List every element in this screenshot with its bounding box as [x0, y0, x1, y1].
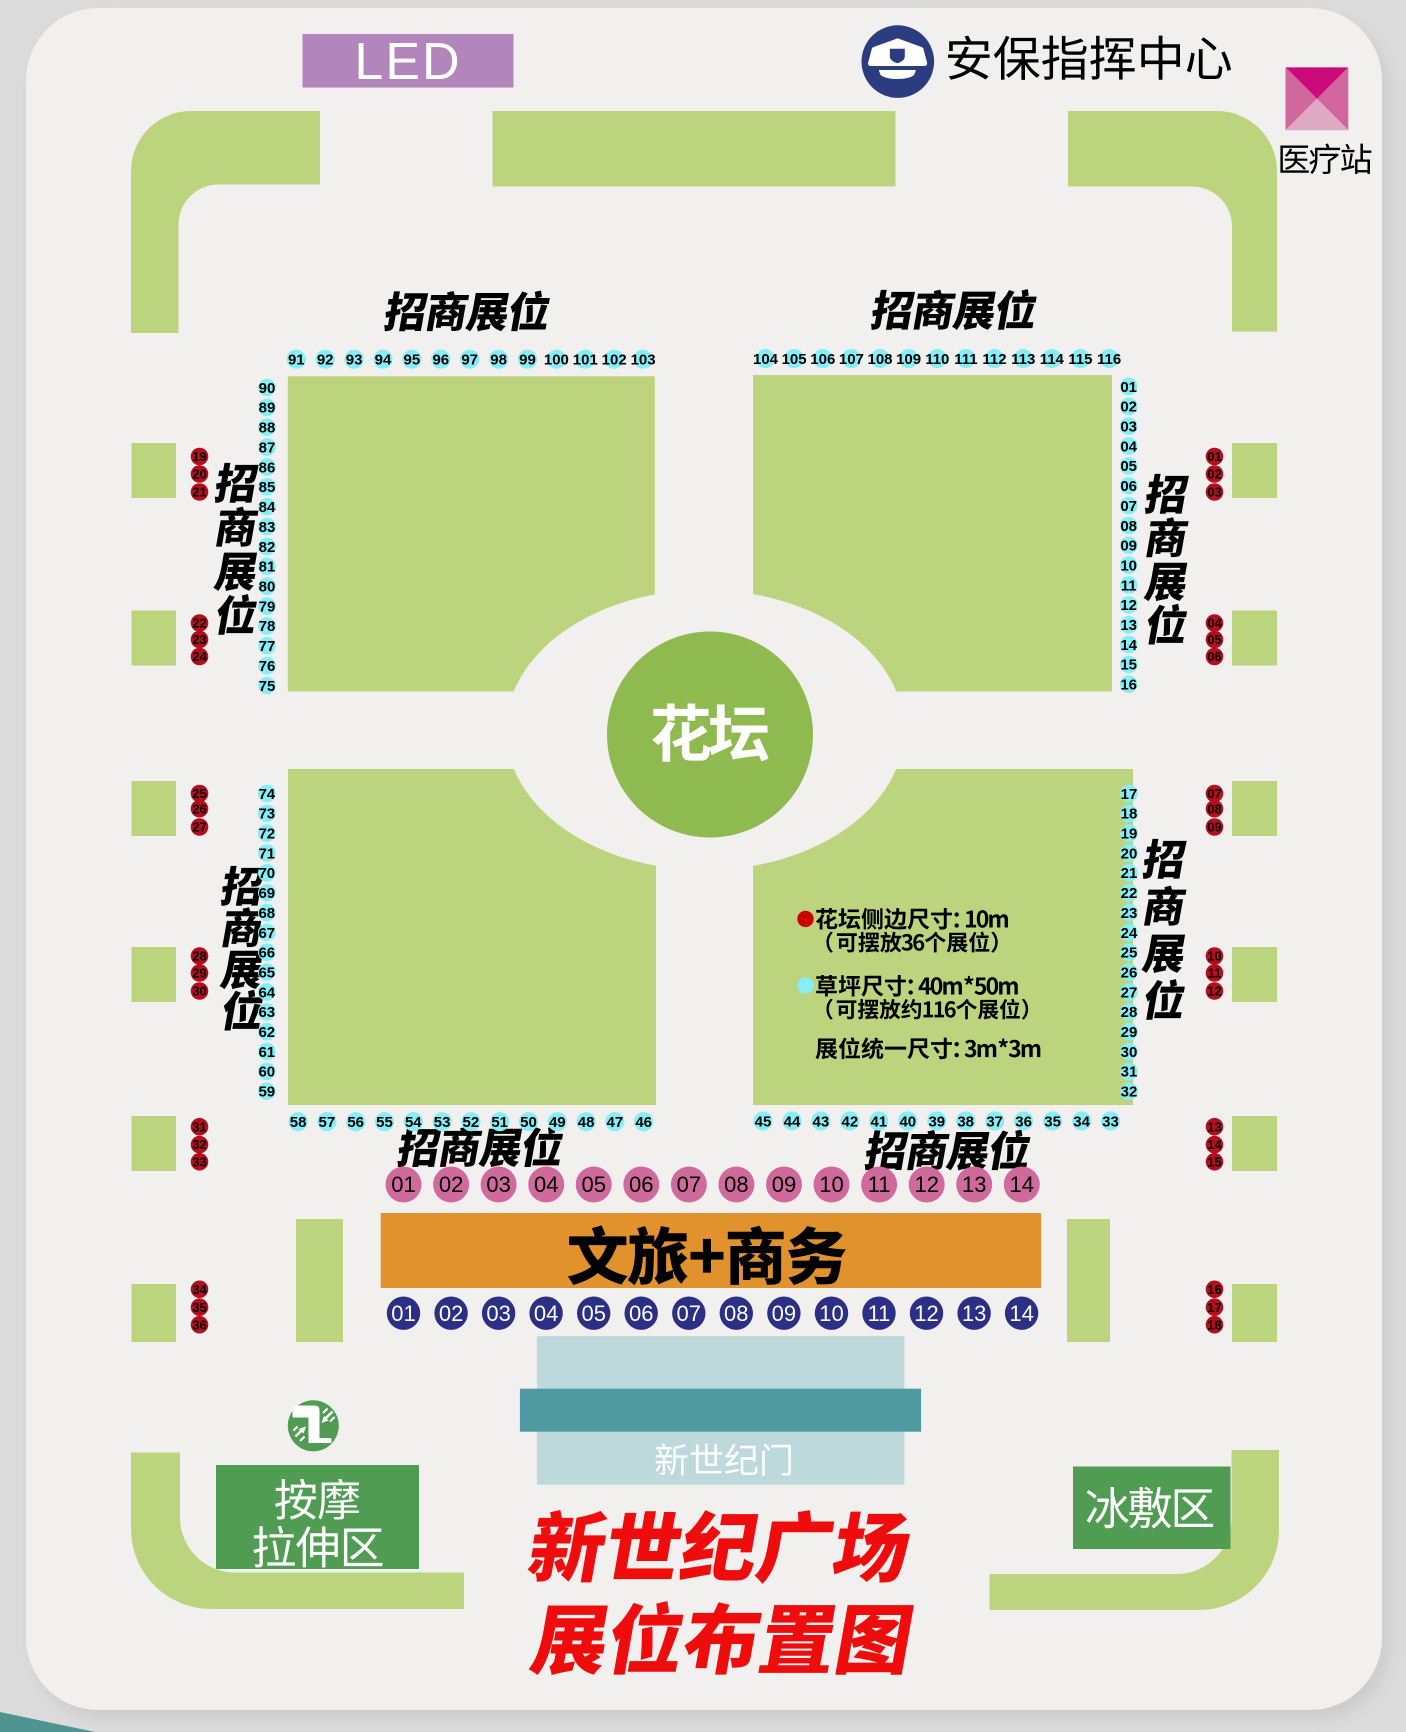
svg-text:26: 26: [192, 801, 206, 816]
svg-text:04: 04: [1207, 616, 1222, 631]
svg-text:80: 80: [259, 579, 276, 596]
svg-text:11: 11: [868, 1301, 891, 1326]
svg-text:22: 22: [1121, 885, 1138, 902]
svg-text:66: 66: [258, 945, 275, 962]
svg-text:26: 26: [1121, 964, 1138, 981]
svg-text:89: 89: [259, 400, 276, 417]
svg-text:01: 01: [391, 1172, 415, 1197]
svg-text:76: 76: [259, 658, 276, 675]
svg-text:13: 13: [1207, 1119, 1221, 1134]
svg-text:74: 74: [258, 786, 275, 803]
svg-text:111: 111: [954, 351, 977, 368]
svg-text:01: 01: [1120, 379, 1137, 396]
svg-text:65: 65: [258, 964, 275, 981]
svg-text:12: 12: [914, 1301, 938, 1326]
svg-text:02: 02: [1207, 467, 1221, 482]
svg-text:08: 08: [724, 1301, 748, 1326]
svg-text:113: 113: [1011, 351, 1035, 368]
svg-text:105: 105: [782, 351, 807, 368]
svg-text:29: 29: [1121, 1024, 1138, 1041]
svg-text:17: 17: [1121, 786, 1138, 803]
svg-text:100: 100: [544, 352, 569, 369]
svg-text:36: 36: [1015, 1113, 1032, 1130]
svg-text:08: 08: [1207, 801, 1221, 816]
svg-text:20: 20: [192, 467, 206, 482]
svg-text:43: 43: [813, 1113, 830, 1130]
svg-text:39: 39: [928, 1113, 945, 1130]
svg-text:110: 110: [925, 351, 949, 368]
svg-text:103: 103: [631, 352, 656, 369]
svg-text:114: 114: [1040, 351, 1065, 368]
svg-text:98: 98: [490, 352, 507, 369]
svg-text:21: 21: [1121, 865, 1138, 882]
svg-text:06: 06: [1120, 478, 1137, 495]
svg-text:97: 97: [461, 352, 478, 369]
svg-text:93: 93: [346, 352, 363, 369]
svg-text:71: 71: [258, 845, 275, 862]
svg-text:09: 09: [772, 1301, 796, 1326]
svg-text:05: 05: [581, 1172, 605, 1197]
svg-text:01: 01: [391, 1301, 415, 1326]
svg-text:07: 07: [1207, 786, 1221, 801]
svg-text:23: 23: [1121, 905, 1138, 922]
svg-text:108: 108: [867, 351, 892, 368]
svg-text:67: 67: [258, 925, 275, 942]
svg-text:01: 01: [1207, 449, 1221, 464]
svg-text:60: 60: [258, 1064, 275, 1081]
svg-text:07: 07: [1120, 498, 1137, 515]
svg-text:07: 07: [677, 1301, 701, 1326]
svg-text:14: 14: [1120, 637, 1137, 654]
svg-text:101: 101: [573, 352, 598, 369]
svg-text:11: 11: [868, 1172, 891, 1197]
svg-text:11: 11: [1208, 966, 1222, 981]
svg-text:20: 20: [1121, 845, 1138, 862]
svg-text:10: 10: [1120, 557, 1137, 574]
svg-text:25: 25: [192, 786, 206, 801]
svg-text:18: 18: [1121, 806, 1138, 823]
svg-text:09: 09: [772, 1172, 796, 1197]
svg-text:24: 24: [192, 649, 207, 664]
svg-text:62: 62: [258, 1024, 275, 1041]
svg-text:102: 102: [602, 352, 627, 369]
svg-text:04: 04: [1120, 438, 1137, 455]
svg-text:24: 24: [1121, 925, 1138, 942]
svg-text:70: 70: [258, 865, 275, 882]
svg-text:91: 91: [288, 352, 305, 369]
svg-text:109: 109: [896, 351, 921, 368]
svg-text:12: 12: [914, 1172, 938, 1197]
svg-text:25: 25: [1121, 945, 1138, 962]
svg-text:03: 03: [486, 1172, 510, 1197]
svg-text:10: 10: [819, 1172, 843, 1197]
svg-text:107: 107: [839, 351, 864, 368]
svg-text:03: 03: [486, 1301, 510, 1326]
svg-text:69: 69: [258, 885, 275, 902]
svg-text:45: 45: [755, 1113, 772, 1130]
svg-text:LED: LED: [354, 33, 461, 91]
svg-text:27: 27: [192, 820, 206, 835]
svg-text:56: 56: [347, 1114, 364, 1131]
svg-text:68: 68: [258, 905, 275, 922]
svg-text:28: 28: [192, 949, 206, 964]
svg-text:46: 46: [635, 1114, 652, 1131]
svg-text:02: 02: [1120, 399, 1137, 416]
svg-text:23: 23: [192, 632, 206, 647]
svg-text:57: 57: [319, 1114, 336, 1131]
svg-text:10: 10: [819, 1301, 843, 1326]
svg-text:05: 05: [581, 1301, 605, 1326]
svg-text:09: 09: [1120, 538, 1137, 555]
svg-text:04: 04: [534, 1172, 558, 1197]
svg-text:13: 13: [962, 1172, 986, 1197]
svg-text:90: 90: [259, 380, 276, 397]
svg-text:87: 87: [259, 439, 276, 456]
svg-text:14: 14: [1207, 1137, 1222, 1152]
svg-text:16: 16: [1207, 1282, 1221, 1297]
svg-text:52: 52: [463, 1114, 480, 1131]
svg-text:15: 15: [1120, 657, 1137, 674]
svg-text:64: 64: [258, 984, 275, 1001]
svg-text:41: 41: [870, 1113, 887, 1130]
svg-text:02: 02: [439, 1301, 463, 1326]
svg-text:03: 03: [1207, 485, 1221, 500]
svg-text:35: 35: [1044, 1113, 1061, 1130]
svg-text:54: 54: [405, 1114, 422, 1131]
svg-text:116: 116: [1097, 351, 1121, 368]
svg-text:21: 21: [192, 485, 206, 500]
svg-text:22: 22: [192, 616, 206, 631]
svg-text:106: 106: [810, 351, 835, 368]
svg-text:48: 48: [578, 1114, 595, 1131]
svg-text:36: 36: [192, 1317, 206, 1332]
svg-text:34: 34: [1073, 1113, 1090, 1130]
svg-text:59: 59: [258, 1084, 275, 1101]
svg-text:33: 33: [192, 1154, 206, 1169]
svg-text:18: 18: [1207, 1317, 1221, 1332]
svg-text:14: 14: [1009, 1301, 1033, 1326]
svg-text:30: 30: [192, 984, 206, 999]
svg-text:73: 73: [258, 806, 275, 823]
svg-text:32: 32: [192, 1137, 206, 1152]
svg-text:19: 19: [192, 449, 206, 464]
svg-text:37: 37: [986, 1113, 1003, 1130]
svg-text:112: 112: [982, 351, 1006, 368]
svg-text:16: 16: [1120, 677, 1137, 694]
svg-text:13: 13: [962, 1301, 986, 1326]
svg-text:96: 96: [432, 352, 449, 369]
svg-text:13: 13: [1120, 617, 1137, 634]
svg-text:07: 07: [677, 1172, 701, 1197]
svg-text:95: 95: [404, 352, 421, 369]
svg-text:81: 81: [259, 559, 276, 576]
svg-text:83: 83: [259, 519, 276, 536]
svg-text:30: 30: [1121, 1044, 1138, 1061]
svg-text:84: 84: [259, 499, 276, 516]
svg-text:50: 50: [520, 1114, 537, 1131]
svg-text:05: 05: [1120, 458, 1137, 475]
svg-text:82: 82: [259, 539, 276, 556]
svg-text:06: 06: [629, 1301, 653, 1326]
svg-text:104: 104: [753, 351, 779, 368]
svg-text:47: 47: [607, 1114, 624, 1131]
svg-text:15: 15: [1207, 1154, 1221, 1169]
svg-text:92: 92: [317, 352, 334, 369]
svg-text:115: 115: [1068, 351, 1092, 368]
svg-text:06: 06: [1207, 649, 1221, 664]
svg-text:14: 14: [1010, 1172, 1034, 1197]
svg-text:75: 75: [259, 678, 276, 695]
svg-text:38: 38: [957, 1113, 974, 1130]
svg-text:12: 12: [1120, 597, 1137, 614]
svg-text:32: 32: [1121, 1084, 1138, 1101]
svg-text:61: 61: [258, 1044, 275, 1061]
svg-text:34: 34: [192, 1282, 207, 1297]
svg-text:06: 06: [629, 1172, 653, 1197]
svg-text:49: 49: [549, 1114, 566, 1131]
svg-text:09: 09: [1207, 820, 1221, 835]
svg-text:29: 29: [192, 966, 206, 981]
svg-text:19: 19: [1121, 826, 1138, 843]
svg-text:78: 78: [259, 618, 276, 635]
svg-text:31: 31: [1121, 1064, 1138, 1081]
svg-text:02: 02: [439, 1172, 463, 1197]
svg-text:17: 17: [1207, 1300, 1221, 1315]
svg-text:44: 44: [784, 1113, 801, 1130]
svg-text:77: 77: [259, 638, 276, 655]
svg-text:03: 03: [1120, 419, 1137, 436]
svg-text:40: 40: [899, 1113, 916, 1130]
svg-text:35: 35: [192, 1300, 206, 1315]
svg-text:10: 10: [1207, 949, 1221, 964]
svg-text:94: 94: [375, 352, 392, 369]
svg-text:58: 58: [290, 1114, 307, 1131]
svg-text:63: 63: [258, 1004, 275, 1021]
svg-text:31: 31: [192, 1119, 206, 1134]
svg-text:88: 88: [259, 420, 276, 437]
svg-text:08: 08: [1120, 518, 1137, 535]
svg-text:33: 33: [1102, 1113, 1119, 1130]
svg-text:79: 79: [259, 598, 276, 615]
svg-text:28: 28: [1121, 1004, 1138, 1021]
svg-text:51: 51: [491, 1114, 508, 1131]
svg-text:27: 27: [1121, 984, 1138, 1001]
svg-text:85: 85: [259, 479, 276, 496]
svg-text:42: 42: [842, 1113, 859, 1130]
svg-text:04: 04: [534, 1301, 558, 1326]
svg-text:55: 55: [376, 1114, 393, 1131]
svg-text:99: 99: [519, 352, 536, 369]
svg-text:86: 86: [259, 459, 276, 476]
svg-text:11: 11: [1121, 577, 1137, 594]
svg-text:08: 08: [724, 1172, 748, 1197]
svg-text:05: 05: [1207, 632, 1221, 647]
svg-text:12: 12: [1207, 984, 1221, 999]
svg-text:53: 53: [434, 1114, 451, 1131]
svg-text:72: 72: [258, 826, 275, 843]
